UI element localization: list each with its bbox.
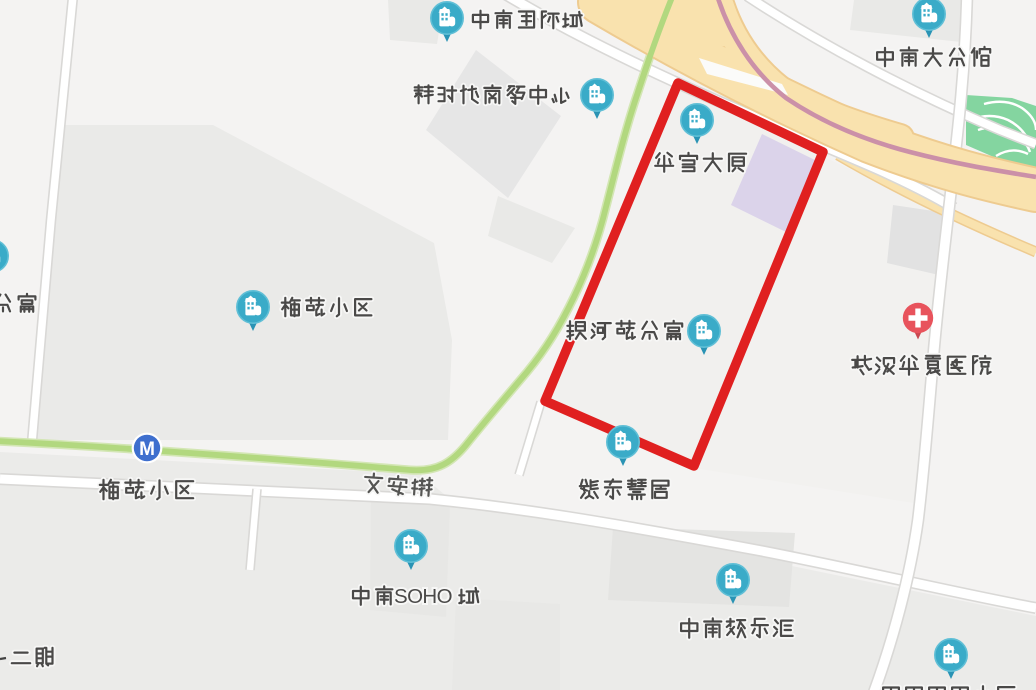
svg-text:SOHO: SOHO xyxy=(394,585,452,608)
svg-text:M: M xyxy=(139,439,155,460)
